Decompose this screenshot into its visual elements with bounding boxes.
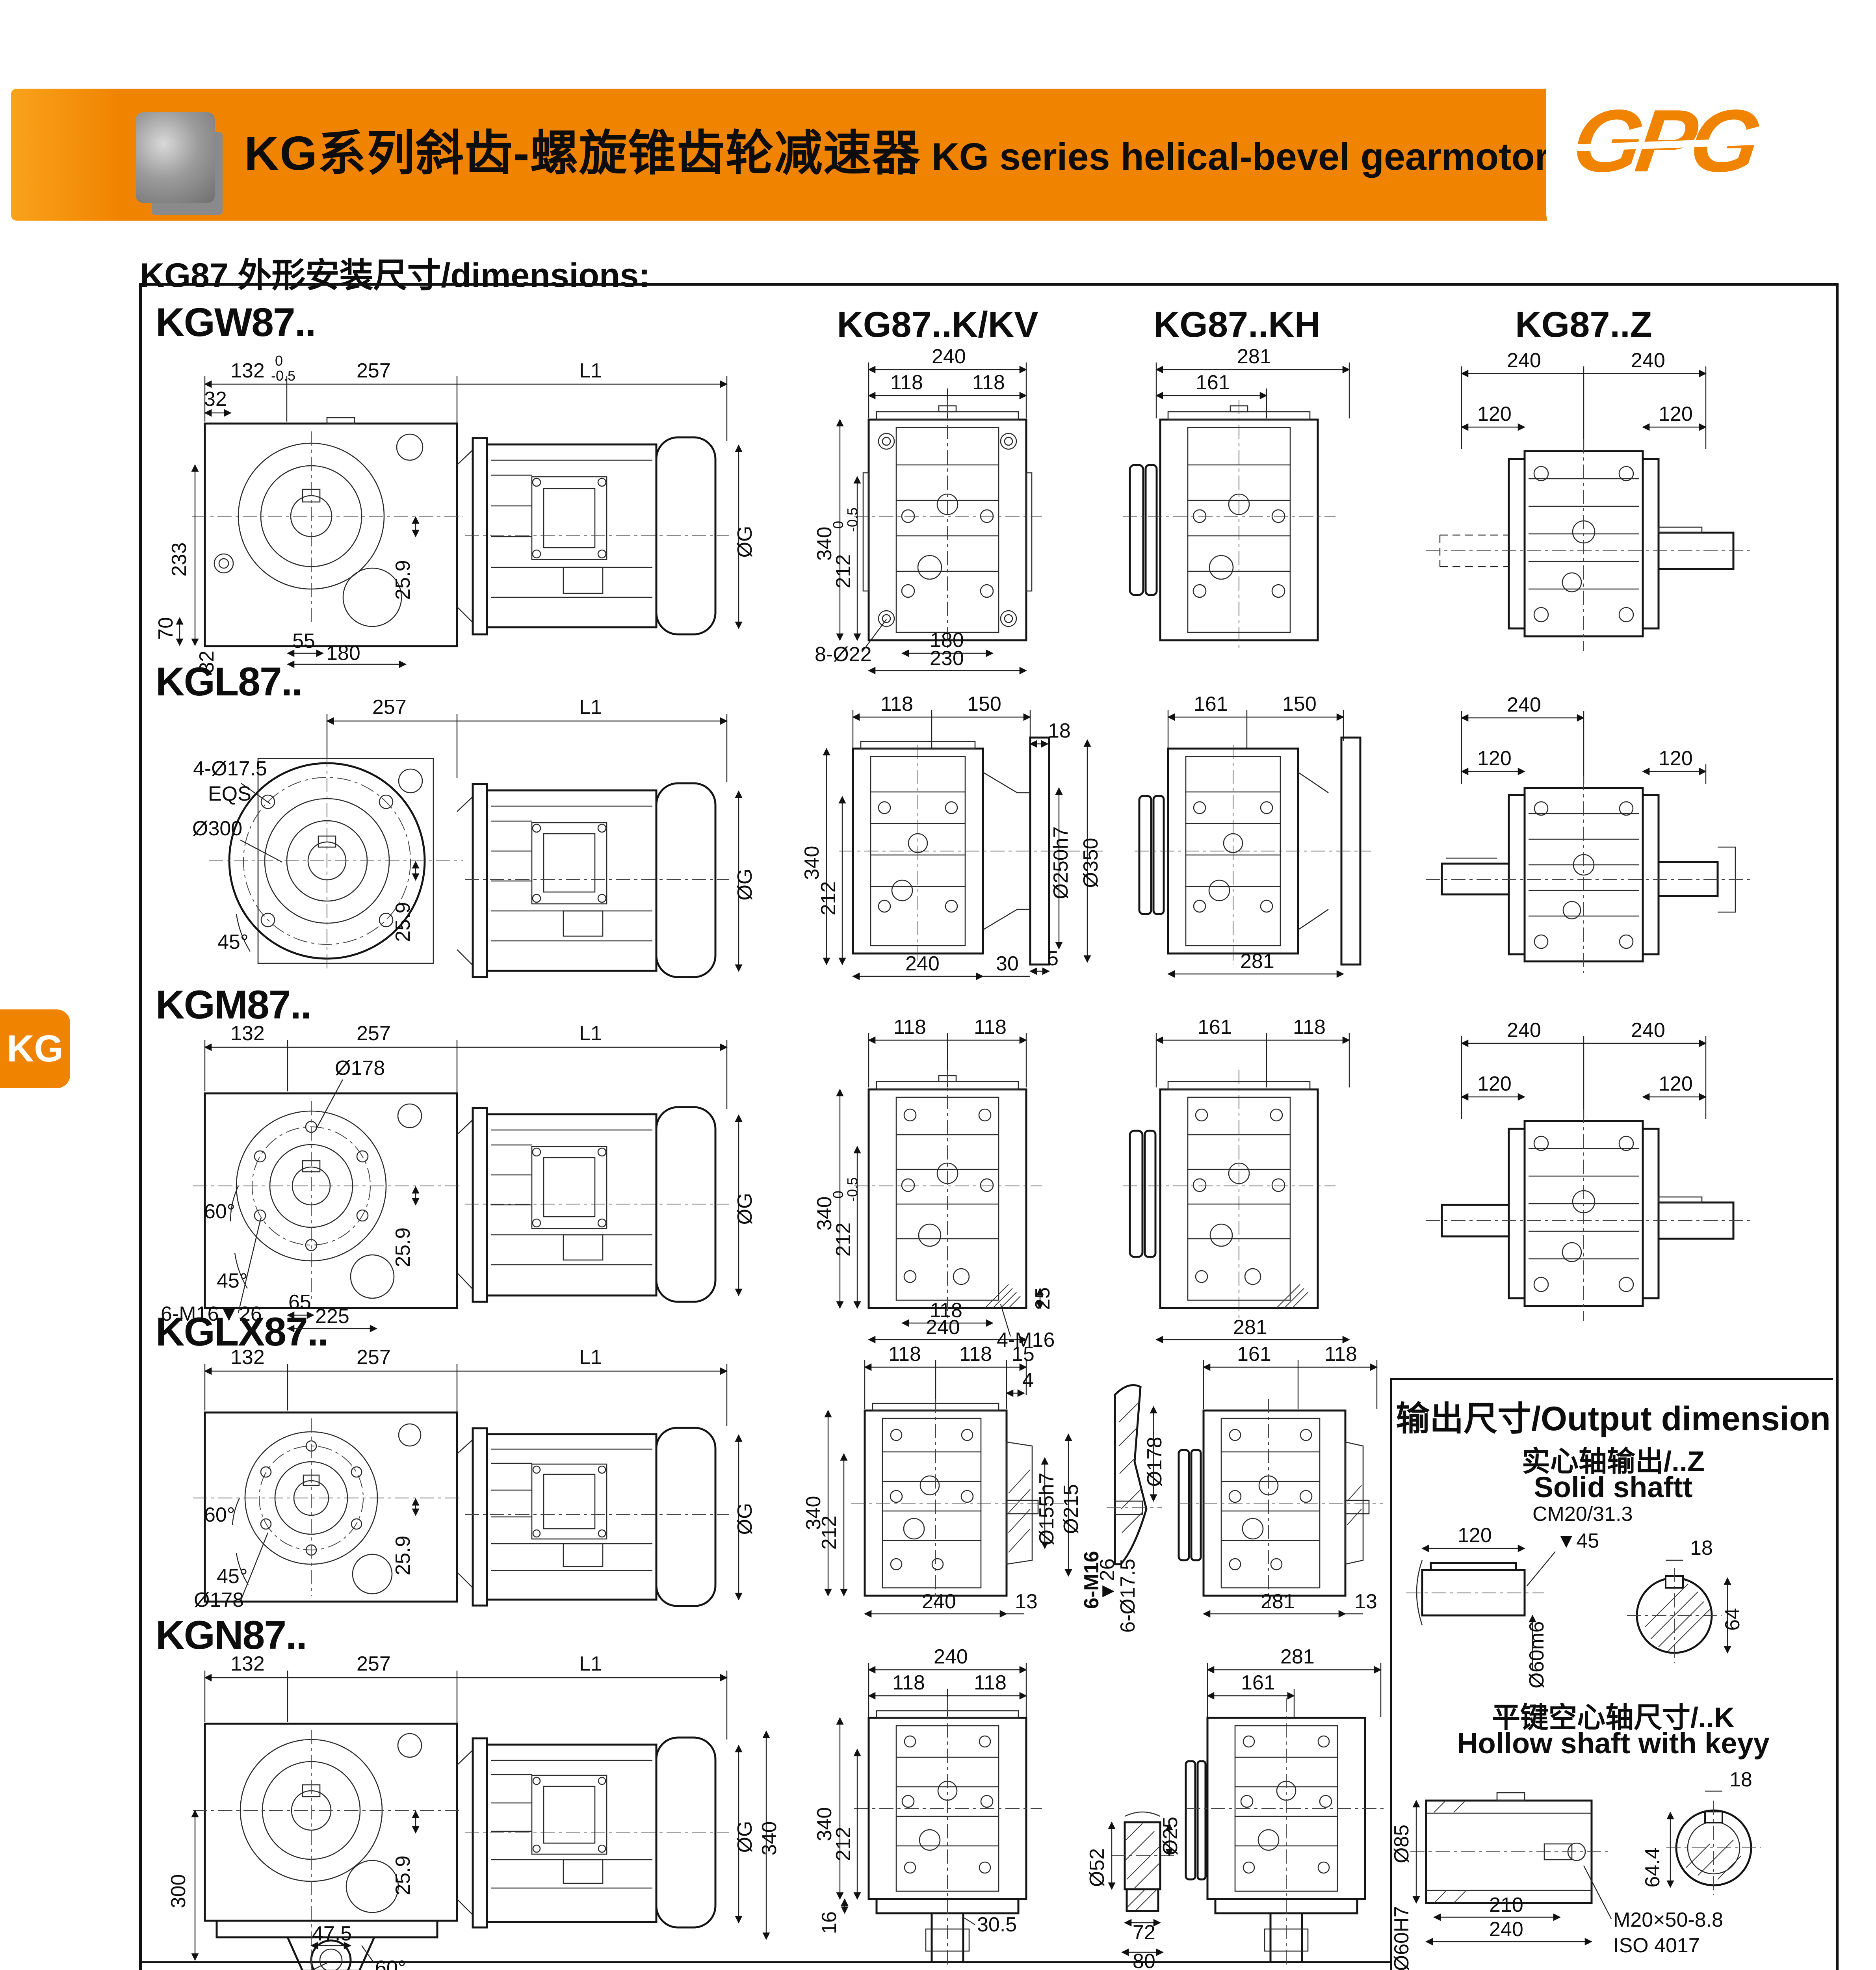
svg-text:-0.5: -0.5 — [844, 1177, 860, 1202]
svg-text:161: 161 — [1198, 1016, 1232, 1039]
svg-text:Ø350: Ø350 — [1079, 838, 1102, 888]
svg-text:16: 16 — [818, 1911, 841, 1934]
svg-text:240: 240 — [1507, 693, 1541, 716]
svg-text:240: 240 — [922, 1590, 956, 1613]
svg-text:30.5: 30.5 — [977, 1913, 1017, 1936]
drawing-kgm-kh: 161118 281 — [1123, 1017, 1375, 1347]
drawing-kgn-side: 132257L1 25.9 ØG 340 300 47.5 60° R41 — [158, 1647, 780, 1970]
svg-text:70: 70 — [154, 617, 177, 640]
svg-text:25.9: 25.9 — [392, 1855, 414, 1895]
svg-text:32: 32 — [204, 388, 227, 411]
svg-text:281: 281 — [1280, 1645, 1315, 1668]
catalog-page: KG系列斜齿-螺旋锥齿轮减速器 KG series helical-bevel … — [0, 0, 1876, 1970]
svg-text:120: 120 — [1477, 1072, 1512, 1095]
drawing-kgl-kh: 161150 281 — [1135, 693, 1375, 977]
svg-text:240: 240 — [1489, 1918, 1523, 1941]
drawing-kglx-kv: 11811815 4 340 212 Ø155h7 Ø215 240 13 — [812, 1344, 1087, 1619]
drawing-kgm-kv: 118118 340 212 0 -0.5 25 118 240 4-M16 — [812, 1017, 1083, 1347]
svg-text:Ø60H7: Ø60H7 — [1390, 1906, 1413, 1970]
svg-text:300: 300 — [167, 1874, 190, 1909]
svg-text:45°: 45° — [217, 931, 249, 953]
svg-text:240: 240 — [934, 1645, 968, 1668]
svg-text:ØG: ØG — [734, 1503, 756, 1535]
svg-text:132: 132 — [230, 359, 265, 382]
svg-text:132: 132 — [230, 1022, 265, 1045]
svg-text:120: 120 — [1659, 403, 1693, 426]
drawing-kgn-kh: 281 161 — [1186, 1647, 1391, 1970]
svg-text:80: 80 — [1133, 1950, 1155, 1970]
svg-text:212: 212 — [832, 1827, 855, 1861]
drawing-kgm-z: 240240 120120 — [1402, 1017, 1765, 1347]
svg-text:Ø178: Ø178 — [335, 1057, 385, 1080]
svg-text:240: 240 — [1507, 349, 1541, 372]
output-kv-title-zh: 渐开线花键空心轴尺寸/..KV — [1395, 1964, 1832, 1970]
svg-text:118: 118 — [974, 1016, 1007, 1039]
svg-text:25.9: 25.9 — [392, 560, 414, 600]
svg-text:240: 240 — [1631, 1019, 1665, 1042]
svg-text:118: 118 — [959, 1343, 992, 1366]
svg-text:13: 13 — [1015, 1590, 1038, 1613]
svg-text:25.9: 25.9 — [392, 1535, 414, 1575]
svg-text:60°: 60° — [204, 1504, 235, 1526]
svg-text:L1: L1 — [579, 1652, 602, 1675]
svg-text:64.4: 64.4 — [1641, 1847, 1664, 1887]
svg-text:161: 161 — [1237, 1343, 1271, 1366]
svg-text:8-Ø22: 8-Ø22 — [815, 643, 872, 666]
drawing-kgw-z: 240240 120120 — [1402, 347, 1765, 674]
svg-text:225: 225 — [315, 1305, 349, 1328]
output-panel-title: 输出尺寸/Output dimension — [1395, 1391, 1832, 1440]
svg-text:281: 281 — [1240, 950, 1274, 973]
svg-text:65: 65 — [288, 1291, 311, 1314]
svg-text:240: 240 — [1631, 349, 1665, 372]
logo-plate: GPG — [1546, 59, 1866, 244]
svg-text:72: 72 — [1133, 1921, 1155, 1944]
svg-text:240: 240 — [1507, 1019, 1541, 1042]
row-label-kgw: KGW87.. — [156, 299, 315, 346]
svg-text:Ø178: Ø178 — [1143, 1437, 1166, 1487]
drawing-kgw-kh: 281 161 — [1123, 347, 1375, 674]
svg-text:25: 25 — [1031, 1287, 1054, 1310]
svg-text:120: 120 — [1477, 747, 1512, 770]
svg-text:▼26: ▼26 — [1096, 1558, 1119, 1601]
svg-text:230: 230 — [930, 647, 964, 670]
svg-text:L1: L1 — [579, 359, 602, 382]
svg-text:EQS: EQS — [208, 782, 251, 805]
svg-text:ØG: ØG — [734, 1821, 756, 1853]
panel-divider-top — [1390, 1378, 1833, 1380]
svg-text:64: 64 — [1721, 1608, 1744, 1631]
drawing-kgl-kv: 118150 18 340 212 Ø250h7 Ø350 5 240 30 — [812, 693, 1123, 977]
svg-text:4-Ø17.5: 4-Ø17.5 — [193, 757, 267, 780]
svg-text:118: 118 — [888, 1343, 921, 1366]
svg-text:257: 257 — [372, 696, 407, 719]
svg-text:340: 340 — [801, 846, 823, 880]
drawing-kgl-z: 240 120120 — [1402, 693, 1765, 977]
svg-text:18: 18 — [1048, 719, 1071, 742]
input-s-name: KG87..S — [953, 1968, 1198, 1970]
col-header-kh: KG87..KH — [1099, 304, 1375, 346]
drawing-kgm-side: 132257L1 Ø178 60° 45° 25.9 ØG 6-M16▼26 — [158, 1017, 780, 1332]
svg-text:30: 30 — [996, 952, 1019, 975]
svg-text:161: 161 — [1196, 371, 1230, 394]
chapter-tab: KG — [0, 1009, 70, 1088]
svg-text:25.9: 25.9 — [392, 902, 414, 942]
svg-text:118: 118 — [880, 693, 913, 716]
drawing-output-solid-shaft: 120 CM20/31.3 ▼45 Ø60m6 18 64 — [1399, 1497, 1828, 1686]
col-header-kv: KG87..K/KV — [788, 304, 1087, 346]
svg-text:Ø52: Ø52 — [1086, 1848, 1109, 1887]
drawing-output-hollow-key: Ø85 Ø60H7 210 240 M20×50-8.8 ISO 4017 18… — [1399, 1753, 1828, 1966]
svg-text:0: 0 — [275, 353, 283, 369]
svg-text:Ø250h7: Ø250h7 — [1049, 826, 1072, 899]
svg-text:L1: L1 — [579, 1022, 602, 1045]
svg-text:132: 132 — [230, 1346, 265, 1369]
svg-text:Ø215: Ø215 — [1060, 1484, 1083, 1534]
svg-text:ØG: ØG — [734, 526, 756, 558]
svg-text:210: 210 — [1489, 1894, 1523, 1916]
svg-text:150: 150 — [1282, 693, 1317, 716]
svg-text:Ø85: Ø85 — [1390, 1825, 1413, 1863]
svg-text:55: 55 — [292, 630, 315, 652]
drawing-kglx-flange-detail: Ø178 6-M16 ▼26 6-Ø17.5 — [1091, 1344, 1174, 1619]
svg-text:M20×50-8.8: M20×50-8.8 — [1613, 1909, 1723, 1931]
drawing-kgl-side: 257L1 4-Ø17.5 EQS Ø300 45° 25.9 ØG — [158, 693, 780, 977]
drawing-kgn-kv: 240 118118 340 212 16 30.5 — [812, 1647, 1087, 1970]
svg-text:4: 4 — [1022, 1369, 1034, 1392]
drawing-kgn-shaft-detail: Ø25 Ø52 72 80 — [1095, 1647, 1182, 1970]
svg-text:132: 132 — [230, 1652, 265, 1675]
svg-text:0: 0 — [830, 521, 846, 529]
drawing-kgw-kv: 240 118118 340 212 0 -0.5 8-Ø22 180 230 — [812, 347, 1083, 674]
svg-text:120: 120 — [1458, 1524, 1492, 1547]
gearmotor-photo — [136, 112, 215, 203]
svg-text:L1: L1 — [579, 696, 602, 719]
svg-text:118: 118 — [1293, 1016, 1326, 1039]
svg-text:118: 118 — [974, 1671, 1007, 1694]
svg-text:ISO 4017: ISO 4017 — [1613, 1934, 1700, 1957]
drawing-kglx-side: 132257L1 60° 45° Ø178 25.9 ØG — [158, 1344, 780, 1619]
svg-text:-0.5: -0.5 — [844, 507, 860, 532]
col-header-z: KG87..Z — [1418, 304, 1749, 346]
svg-text:240: 240 — [932, 345, 966, 368]
svg-text:25.9: 25.9 — [392, 1227, 414, 1267]
svg-text:0: 0 — [830, 1191, 846, 1199]
svg-text:-0.5: -0.5 — [271, 368, 295, 384]
svg-text:212: 212 — [818, 1516, 841, 1550]
page-title: KG系列斜齿-螺旋锥齿轮减速器 KG series helical-bevel … — [244, 114, 1549, 184]
svg-text:212: 212 — [817, 881, 840, 916]
svg-text:233: 233 — [168, 543, 191, 577]
svg-text:118: 118 — [972, 371, 1005, 394]
svg-text:6-Ø17.5: 6-Ø17.5 — [1116, 1559, 1139, 1633]
svg-text:257: 257 — [357, 359, 391, 382]
svg-text:Ø60m6: Ø60m6 — [1525, 1621, 1548, 1689]
svg-text:257: 257 — [357, 1022, 391, 1045]
svg-text:32: 32 — [195, 650, 218, 673]
drawing-kgw-side: 132 0 -0.5 257 L1 32 ØG 25.9 233 70 32 — [158, 347, 780, 666]
svg-text:120: 120 — [1659, 747, 1693, 770]
svg-text:60°: 60° — [375, 1957, 406, 1970]
svg-text:281: 281 — [1261, 1590, 1295, 1613]
svg-text:6-M16▼26: 6-M16▼26 — [161, 1303, 262, 1325]
svg-text:R41: R41 — [263, 1967, 301, 1970]
page-title-en: KG series helical-bevel gearmotor — [921, 135, 1550, 178]
svg-text:5: 5 — [1047, 947, 1059, 970]
svg-text:240: 240 — [926, 1316, 960, 1339]
svg-text:13: 13 — [1354, 1590, 1377, 1613]
svg-text:161: 161 — [1241, 1671, 1275, 1694]
svg-text:18: 18 — [1729, 1768, 1752, 1791]
svg-text:118: 118 — [892, 1671, 925, 1694]
svg-text:257: 257 — [357, 1346, 391, 1369]
svg-text:CM20/31.3: CM20/31.3 — [1532, 1503, 1633, 1526]
drawing-kglx-kh: 161118 281 13 — [1178, 1344, 1391, 1619]
svg-text:118: 118 — [1324, 1343, 1357, 1366]
svg-text:▼45: ▼45 — [1556, 1530, 1599, 1552]
svg-text:281: 281 — [1237, 345, 1271, 368]
svg-text:150: 150 — [967, 693, 1001, 716]
svg-text:ØG: ØG — [734, 1193, 756, 1225]
svg-text:118: 118 — [890, 371, 923, 394]
svg-text:Ø300: Ø300 — [192, 817, 242, 840]
svg-text:ØG: ØG — [734, 869, 756, 901]
svg-text:240: 240 — [905, 952, 940, 975]
svg-text:257: 257 — [357, 1652, 391, 1675]
svg-text:281: 281 — [1233, 1316, 1267, 1339]
svg-text:L1: L1 — [579, 1346, 602, 1369]
svg-text:118: 118 — [893, 1016, 926, 1039]
svg-text:340: 340 — [758, 1821, 781, 1856]
svg-text:18: 18 — [1690, 1537, 1713, 1559]
svg-text:Ø25: Ø25 — [1159, 1817, 1182, 1855]
svg-text:180: 180 — [326, 642, 360, 665]
svg-text:45°: 45° — [217, 1565, 248, 1588]
page-title-zh: KG系列斜齿-螺旋锥齿轮减速器 — [244, 126, 921, 180]
svg-text:212: 212 — [832, 1223, 855, 1257]
svg-text:161: 161 — [1194, 693, 1228, 716]
svg-text:15: 15 — [1012, 1343, 1035, 1366]
svg-text:212: 212 — [832, 554, 855, 589]
svg-text:47.5: 47.5 — [312, 1922, 352, 1945]
svg-text:120: 120 — [1477, 403, 1512, 426]
svg-text:Ø178: Ø178 — [194, 1589, 244, 1611]
svg-text:Ø155h7: Ø155h7 — [1035, 1472, 1058, 1545]
svg-text:120: 120 — [1659, 1072, 1693, 1095]
